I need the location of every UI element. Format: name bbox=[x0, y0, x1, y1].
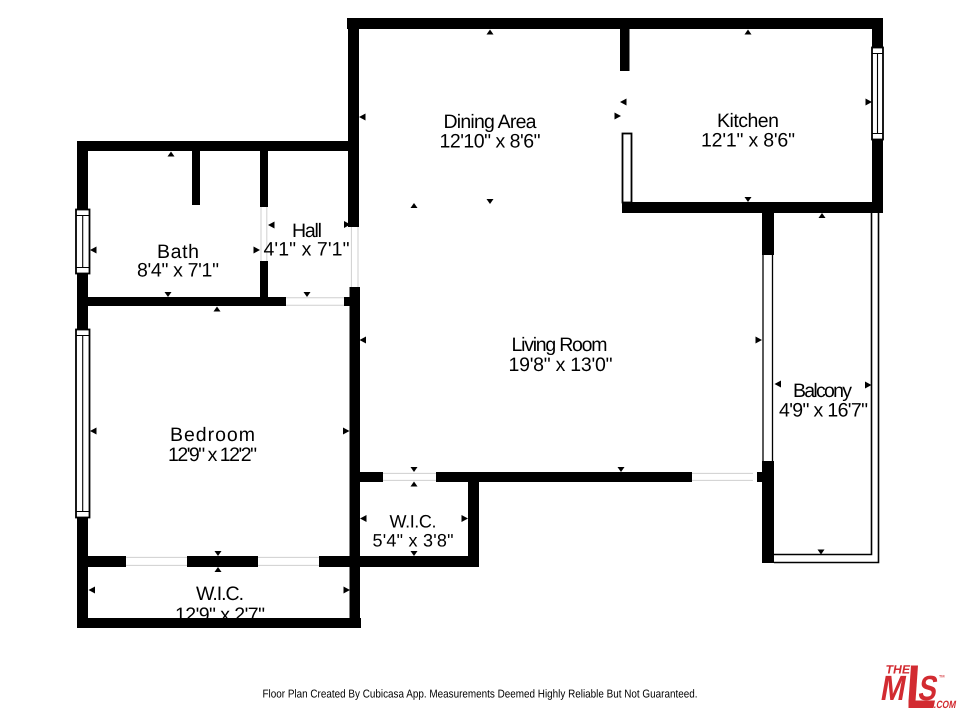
svg-text:4'9" x 16'7": 4'9" x 16'7" bbox=[779, 400, 868, 422]
svg-text:12'9" x 2'7": 12'9" x 2'7" bbox=[175, 604, 265, 626]
svg-text:™: ™ bbox=[939, 675, 946, 682]
svg-text:.COM: .COM bbox=[933, 699, 957, 711]
svg-text:5'4" x 3'8": 5'4" x 3'8" bbox=[373, 531, 454, 551]
svg-text:12'10" x 8'6": 12'10" x 8'6" bbox=[440, 130, 541, 152]
svg-text:Bedroom: Bedroom bbox=[170, 424, 255, 446]
svg-text:Living Room: Living Room bbox=[512, 334, 608, 356]
svg-text:8'4" x 7'1": 8'4" x 7'1" bbox=[137, 260, 219, 282]
svg-text:W.I.C.: W.I.C. bbox=[390, 512, 437, 532]
svg-text:Floor Plan Created By Cubicasa: Floor Plan Created By Cubicasa App. Meas… bbox=[263, 689, 698, 701]
svg-text:19'8" x 13'0": 19'8" x 13'0" bbox=[509, 354, 613, 376]
svg-text:12'9" x 12'2": 12'9" x 12'2" bbox=[168, 444, 257, 466]
svg-text:W.I.C.: W.I.C. bbox=[196, 583, 244, 605]
svg-text:12'1" x 8'6": 12'1" x 8'6" bbox=[701, 130, 795, 152]
svg-text:4'1" x 7'1": 4'1" x 7'1" bbox=[264, 239, 350, 261]
